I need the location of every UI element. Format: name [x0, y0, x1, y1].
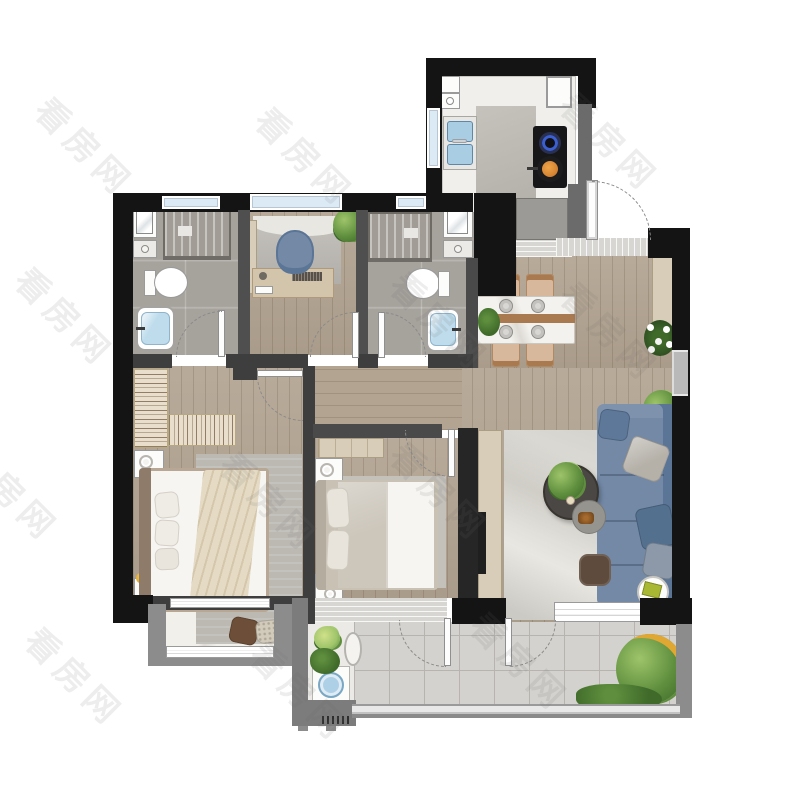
dining-chair-3 [492, 342, 520, 367]
master-headboard [139, 468, 151, 612]
kitchen-window [427, 108, 440, 168]
dining-centerpiece [478, 308, 500, 336]
bedroom2-pillow-1 [326, 487, 351, 528]
wall-balcony-top-b [640, 598, 692, 625]
wall-master-door-jamb [233, 366, 257, 380]
bedroom2-wardrobe [318, 438, 384, 458]
master-wardrobe-vertical [134, 368, 168, 448]
balcony-railing [352, 704, 680, 718]
bedroom2-headboard [316, 480, 326, 590]
watermark: 看房网 [0, 430, 72, 552]
wall-master-sw-corner [113, 595, 153, 623]
plate-3 [499, 325, 513, 339]
living-right-window [672, 350, 688, 396]
bathroom1-shower-glass [163, 256, 231, 260]
bathroom2-window [396, 196, 426, 209]
study-window [250, 194, 342, 210]
kitchen-sink-basin-2 [447, 144, 473, 165]
bathroom2-cabinet-knob [454, 245, 462, 253]
bathtub1-basin [141, 312, 170, 345]
wall-bay-left [148, 604, 166, 660]
nook-hatch [322, 716, 350, 724]
bedroom2-pillow-2 [326, 529, 350, 570]
master-pillow-2 [154, 519, 180, 547]
washing-machine-door [318, 672, 344, 698]
snack-tray [578, 512, 594, 524]
wall-kitchen-top [426, 58, 596, 76]
master-lamp-1 [139, 455, 153, 469]
laundry-sink [344, 632, 362, 666]
coffee-table-plant [548, 462, 584, 500]
table-runner [493, 314, 575, 323]
bedroom2-balcony-threshold [315, 598, 447, 622]
toilet1-bowl [154, 267, 188, 298]
kitchen-base-cabinet [516, 198, 568, 240]
wall-bedroom2-living [458, 428, 478, 604]
plate-4 [531, 325, 545, 339]
bathtub2-faucet [452, 328, 461, 331]
bathroom1-washbasin [136, 209, 153, 234]
wall-row-bottom-1 [133, 354, 172, 368]
toilet2-tank [438, 271, 450, 297]
kitchen-cabinet-knob [446, 97, 454, 105]
bedroom2-lamp-1 [320, 463, 334, 477]
study-chair [276, 230, 314, 274]
nook-plant-dark [310, 648, 340, 674]
wall-balcony-top-a [452, 598, 506, 624]
sideboard [652, 246, 674, 330]
coffee-cup-1 [566, 496, 575, 505]
nook-tab-2 [326, 726, 336, 731]
wall-left [113, 193, 133, 623]
bathtub1-faucet [136, 327, 145, 330]
master-pillow-1 [154, 491, 181, 519]
wall-bath1-study [238, 210, 250, 356]
pouf [579, 554, 611, 586]
wall-bay-bottom [148, 658, 292, 666]
bedroom2-duvet-white [386, 482, 434, 588]
bathroom2-shower [368, 212, 432, 260]
study-papers [255, 286, 273, 294]
floor-plan: 看房网 看房网 看房网 看房网 看房网 看房网 看房网 看房网 看房网 看房网 … [0, 0, 800, 808]
wok-food [542, 161, 558, 177]
master-wardrobe-horizontal [168, 414, 236, 446]
wall-bay-right [274, 604, 292, 660]
bathroom1-shower [163, 210, 231, 258]
burner [539, 132, 561, 154]
toilet2-bowl [406, 268, 440, 299]
study-desk-deco [259, 272, 267, 280]
plate-2 [531, 299, 545, 313]
nook-tab-1 [298, 726, 308, 731]
entry-door-arc [592, 181, 651, 240]
entry-threshold [556, 238, 650, 256]
dining-chair-4 [526, 342, 554, 367]
bay-window-sill [166, 646, 274, 658]
kitchen-wall-cabinet [440, 76, 460, 93]
fridge [546, 76, 572, 108]
nook-plant-light [314, 626, 340, 650]
wall-dining-west [466, 258, 478, 368]
wok-handle [527, 167, 538, 170]
wall-kitchen-right-mid [578, 104, 592, 186]
bathroom1-window [162, 196, 220, 209]
watermark: 看房网 [15, 615, 137, 737]
watermark: 看房网 [25, 85, 147, 207]
living-balcony-window [554, 602, 642, 622]
bathroom1-cabinet-knob [141, 245, 149, 253]
master-bay-window [170, 598, 270, 608]
kitchen-faucet [452, 139, 467, 143]
wall-kitchen-right-top [578, 58, 596, 108]
plate-1 [499, 299, 513, 313]
wall-bedroom-divider [303, 366, 315, 624]
bathroom2-shower-drain [404, 228, 418, 238]
wall-column-bath2 [474, 193, 516, 296]
wall-nook-left [292, 598, 308, 714]
wall-row-bottom-4 [428, 354, 473, 368]
wall-right [672, 228, 690, 624]
wall-row-bottom-3 [358, 354, 378, 368]
master-pillow-3 [154, 547, 179, 570]
watermark: 看房网 [5, 255, 127, 377]
bathroom2-shower-glass [368, 258, 432, 262]
sofa-pillow-blue-1 [597, 408, 631, 442]
bathroom1-shower-drain [178, 226, 192, 236]
